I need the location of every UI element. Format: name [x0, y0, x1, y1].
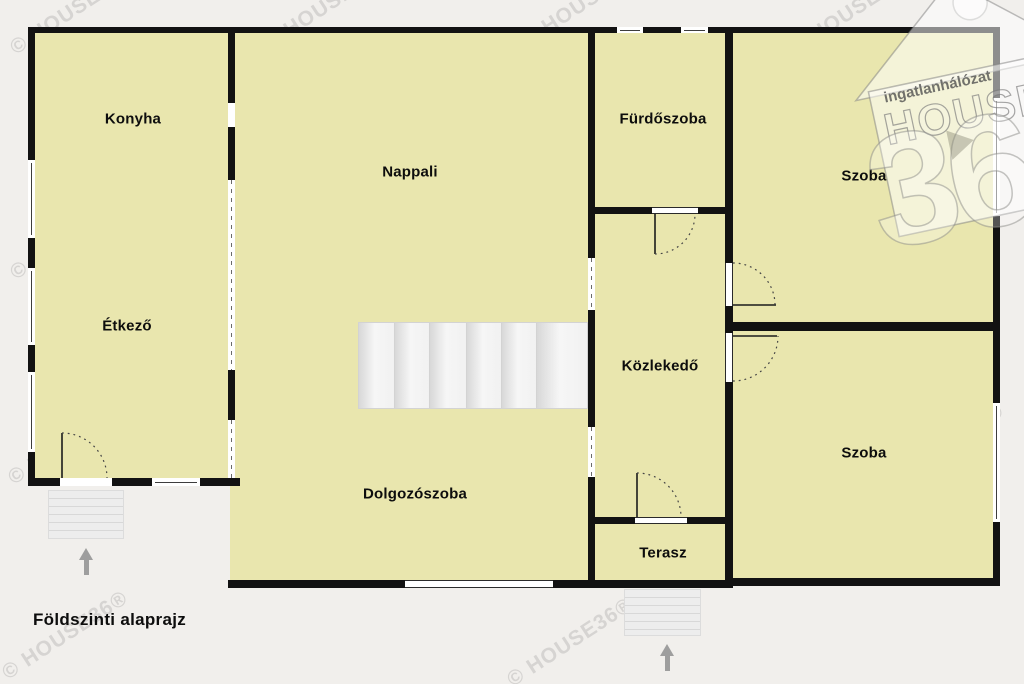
plan-title: Földszinti alaprajz [33, 610, 186, 630]
wall-segment [725, 322, 1000, 331]
room-label-kozlekedo: Közlekedő [622, 358, 699, 375]
arrow-head [79, 548, 93, 560]
room-label-dolgozoszoba: Dolgozószoba [363, 486, 467, 503]
stair-tread [502, 322, 537, 409]
window [993, 98, 1000, 216]
room-label-terasz: Terasz [639, 545, 687, 562]
room-label-szoba-felso: Szoba [841, 168, 886, 185]
window [28, 372, 35, 452]
room-area-konyha-etkezo [33, 33, 233, 478]
entrance-arrow-icon [660, 644, 674, 671]
wall-segment [28, 27, 1000, 33]
wall-segment [727, 578, 1000, 586]
room-label-konyha: Konyha [105, 111, 161, 128]
watermark-text: © HOUSE36® [0, 586, 133, 684]
arrow-head [660, 644, 674, 656]
entrance-steps [624, 589, 701, 636]
wall-segment [725, 27, 733, 586]
window [405, 580, 553, 588]
open-boundary [588, 427, 595, 477]
door-frame-furdoszoba [652, 207, 698, 214]
window [617, 27, 643, 33]
stair-tread [430, 322, 467, 409]
watermark-text: © HOUSE36® [503, 593, 638, 684]
stair-tread [358, 322, 395, 409]
arrow-shaft [665, 656, 670, 671]
room-label-szoba-also: Szoba [841, 445, 886, 462]
window [993, 403, 1000, 522]
door-frame-szoba-felso [725, 263, 733, 306]
open-boundary [588, 258, 595, 310]
window [152, 478, 200, 486]
window [28, 268, 35, 345]
window [28, 160, 35, 238]
entrance-arrow-icon [79, 548, 93, 575]
open-boundary [228, 420, 235, 478]
room-label-etkezo: Étkező [102, 318, 152, 335]
stairs [358, 322, 588, 409]
floorplan-canvas: © HOUSE36® © HOUSE36® © HOUSE36® © HOUSE… [0, 0, 1024, 684]
room-label-furdoszoba: Fürdőszoba [620, 111, 707, 128]
room-label-nappali: Nappali [382, 164, 438, 181]
room-area-szobak [729, 33, 995, 578]
entrance-steps [48, 490, 124, 539]
arrow-shaft [84, 560, 89, 575]
door-frame-szoba-also [725, 333, 733, 382]
stair-tread [395, 322, 430, 409]
wall-opening [228, 103, 235, 127]
door-frame-bejarat [60, 478, 112, 486]
door-frame-terasz [635, 517, 687, 524]
stair-tread [537, 322, 588, 409]
stair-tread [467, 322, 502, 409]
open-boundary [228, 180, 235, 370]
window [681, 27, 708, 33]
